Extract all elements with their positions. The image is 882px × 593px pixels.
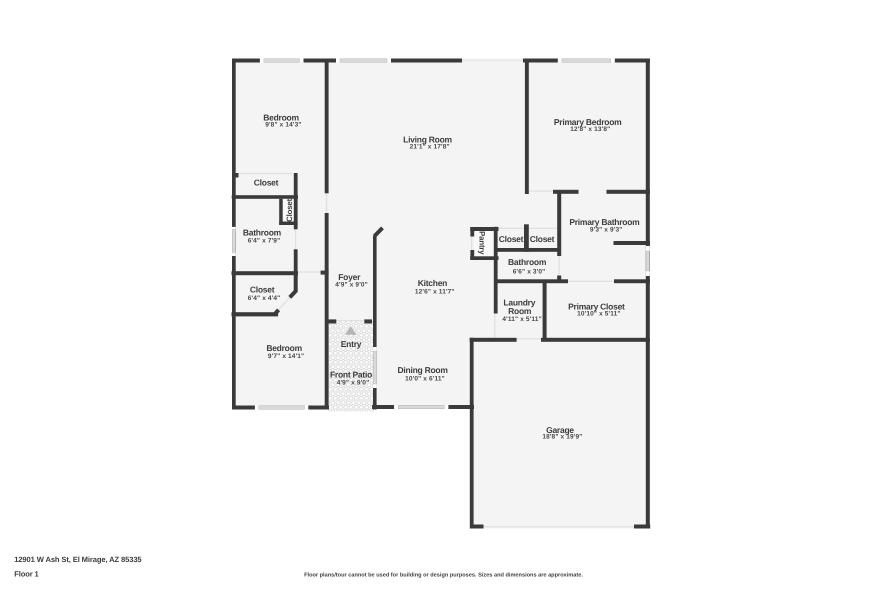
svg-text:4'11" x 5'11": 4'11" x 5'11": [502, 316, 541, 323]
svg-text:10'0" x 6'11": 10'0" x 6'11": [405, 376, 445, 383]
svg-text:9'8" x 14'3": 9'8" x 14'3": [265, 122, 301, 129]
svg-text:12'8" x 13'8": 12'8" x 13'8": [570, 126, 610, 133]
svg-text:Closet: Closet: [285, 198, 294, 221]
svg-text:21'1" x 17'8": 21'1" x 17'8": [410, 144, 450, 151]
svg-text:Dining Room: Dining Room: [398, 365, 449, 375]
svg-text:18'8" x 19'9": 18'8" x 19'9": [542, 434, 582, 441]
svg-text:12'6" x 11'7": 12'6" x 11'7": [415, 288, 455, 295]
svg-text:Closet: Closet: [254, 178, 279, 188]
svg-text:6'4" x 4'4": 6'4" x 4'4": [248, 295, 281, 302]
svg-text:Kitchen: Kitchen: [418, 278, 447, 288]
svg-text:Room: Room: [508, 306, 532, 316]
svg-text:Pantry: Pantry: [477, 231, 486, 255]
svg-text:4'9" x 9'0": 4'9" x 9'0": [337, 380, 370, 387]
svg-text:9'7" x 14'1": 9'7" x 14'1": [268, 353, 304, 360]
svg-text:6'4" x 7'9": 6'4" x 7'9": [248, 237, 281, 244]
svg-text:Closet: Closet: [250, 284, 275, 294]
svg-text:9'3" x 9'3": 9'3" x 9'3": [590, 227, 623, 234]
svg-text:Front Patio: Front Patio: [330, 369, 372, 379]
svg-text:6'6" x 3'0": 6'6" x 3'0": [513, 268, 546, 275]
svg-text:4'9" x 9'0": 4'9" x 9'0": [335, 282, 368, 289]
svg-text:Primary Bathroom: Primary Bathroom: [569, 217, 640, 227]
svg-text:Bathroom: Bathroom: [243, 228, 282, 238]
svg-text:10'10" x 5'11": 10'10" x 5'11": [577, 311, 621, 318]
svg-text:Floor plans/tour cannot be use: Floor plans/tour cannot be used for buil…: [304, 572, 583, 579]
svg-text:12901 W Ash St, El Mirage, AZ: 12901 W Ash St, El Mirage, AZ 85335: [14, 555, 142, 564]
svg-text:Floor 1: Floor 1: [14, 570, 39, 579]
svg-text:Entry: Entry: [341, 339, 362, 349]
svg-text:Closet: Closet: [530, 234, 555, 244]
svg-text:Bedroom: Bedroom: [266, 343, 302, 353]
svg-text:Foyer: Foyer: [338, 272, 361, 282]
svg-text:Closet: Closet: [499, 234, 524, 244]
svg-text:Bathroom: Bathroom: [508, 257, 547, 267]
